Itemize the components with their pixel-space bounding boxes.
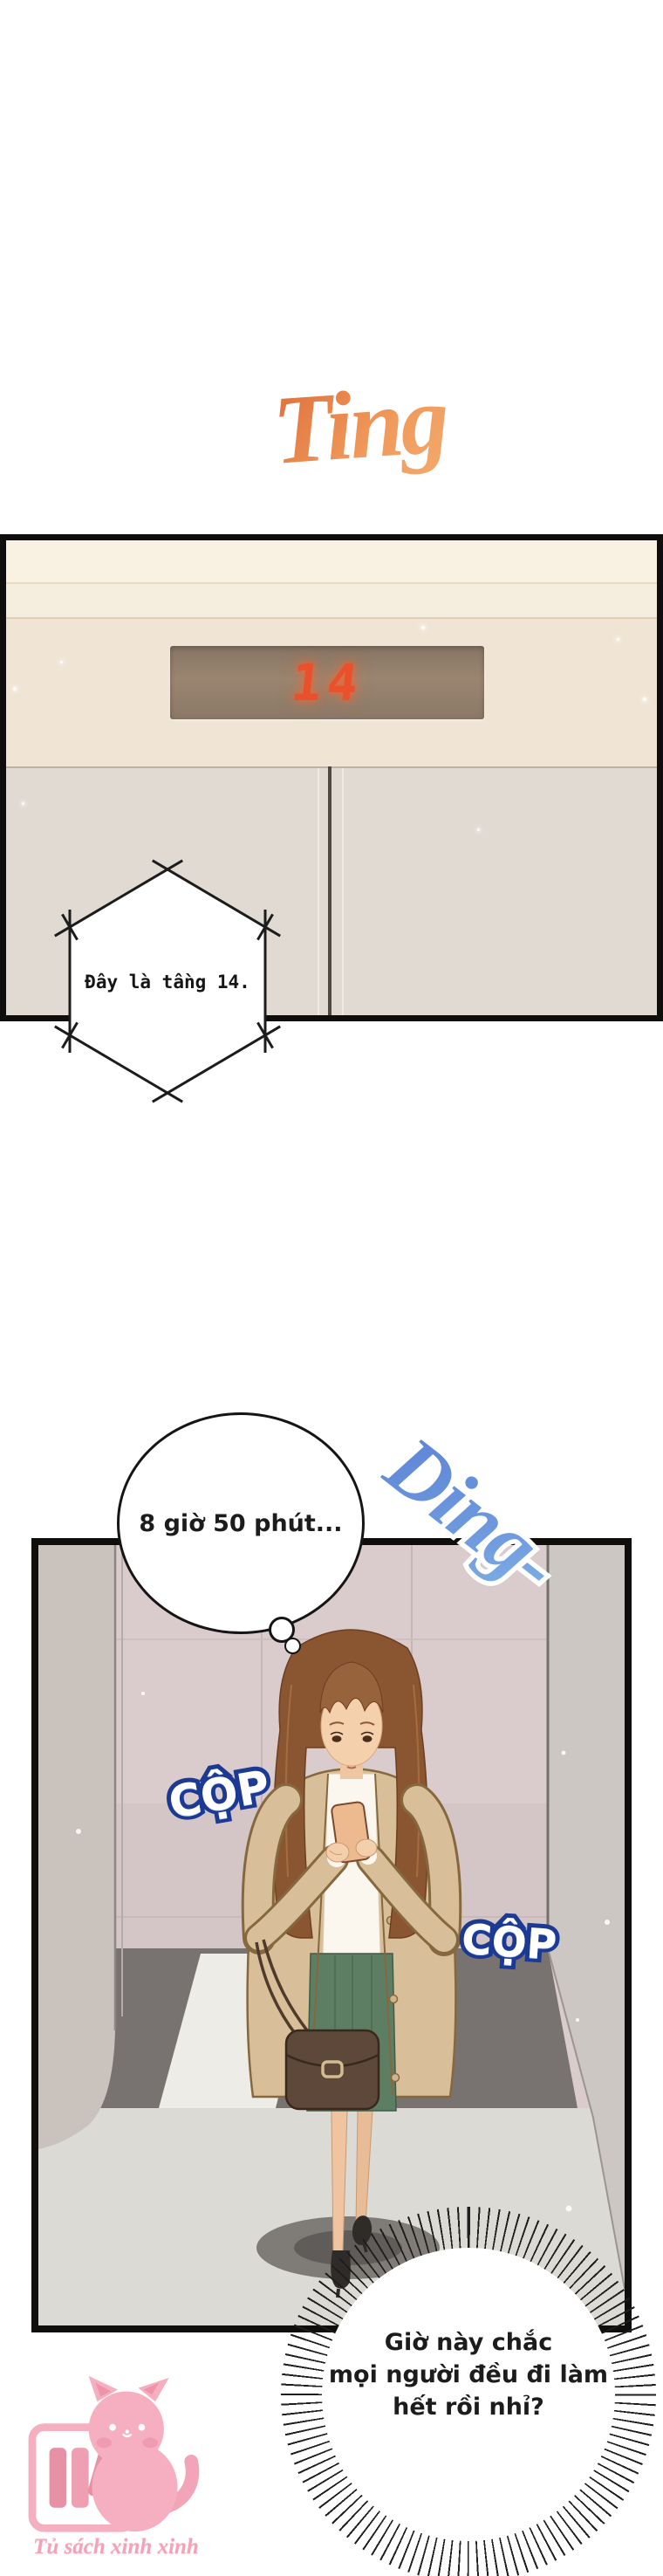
door-gap <box>328 766 331 1015</box>
starburst-text-line3: hết rồi nhỉ? <box>393 2391 544 2423</box>
floor-indicator-panel: 14 <box>170 646 484 719</box>
sparkle <box>617 638 619 641</box>
hand-left <box>326 1843 349 1862</box>
door-highlight-right <box>342 768 344 1015</box>
watermark-text: Tủ sách xinh xinh <box>17 2535 215 2559</box>
cat-eye <box>138 2424 145 2431</box>
starburst-text-line1: Giờ này chắc <box>385 2326 552 2359</box>
sparkle <box>643 697 646 701</box>
sparkle <box>22 802 24 805</box>
cat-eye <box>109 2424 116 2431</box>
floor-display-digits: 14 <box>289 653 366 712</box>
thought-trail-circle-small <box>284 1638 301 1654</box>
sparkle <box>13 687 17 690</box>
sparkle <box>477 828 480 831</box>
starburst-text-line2: mọi người đều đi làm <box>329 2359 608 2391</box>
hexagon-speech-bubble: Đây là tầng 14. <box>35 855 300 1109</box>
publisher-mascot-cat-icon <box>24 2371 208 2538</box>
sfx-ting: Ting <box>263 345 457 532</box>
sparkle <box>421 626 425 629</box>
hexagon-bubble-text: Đây là tầng 14. <box>85 972 250 993</box>
thought-bubble-text: 8 giờ 50 phút... <box>139 1510 342 1537</box>
starburst-bubble: Giờ này chắc mọi người đều đi làm hết rồ… <box>322 2248 615 2541</box>
sfx-cop-right: CỘP CỘP <box>458 1915 568 2001</box>
sparkle <box>60 661 63 663</box>
cat-head <box>89 2392 164 2467</box>
bag-clasp <box>323 2062 342 2077</box>
comic-page: Ting 14 <box>0 0 663 2576</box>
sfx-cop-fill: CỘP <box>460 1915 557 1969</box>
thought-bubble: 8 giờ 50 phút... <box>117 1412 365 1634</box>
wall-molding-second <box>6 584 657 619</box>
wall-molding-top <box>6 540 657 584</box>
door-highlight-left <box>318 768 319 1015</box>
left-wall <box>38 1545 115 2149</box>
hand-right <box>356 1839 377 1857</box>
